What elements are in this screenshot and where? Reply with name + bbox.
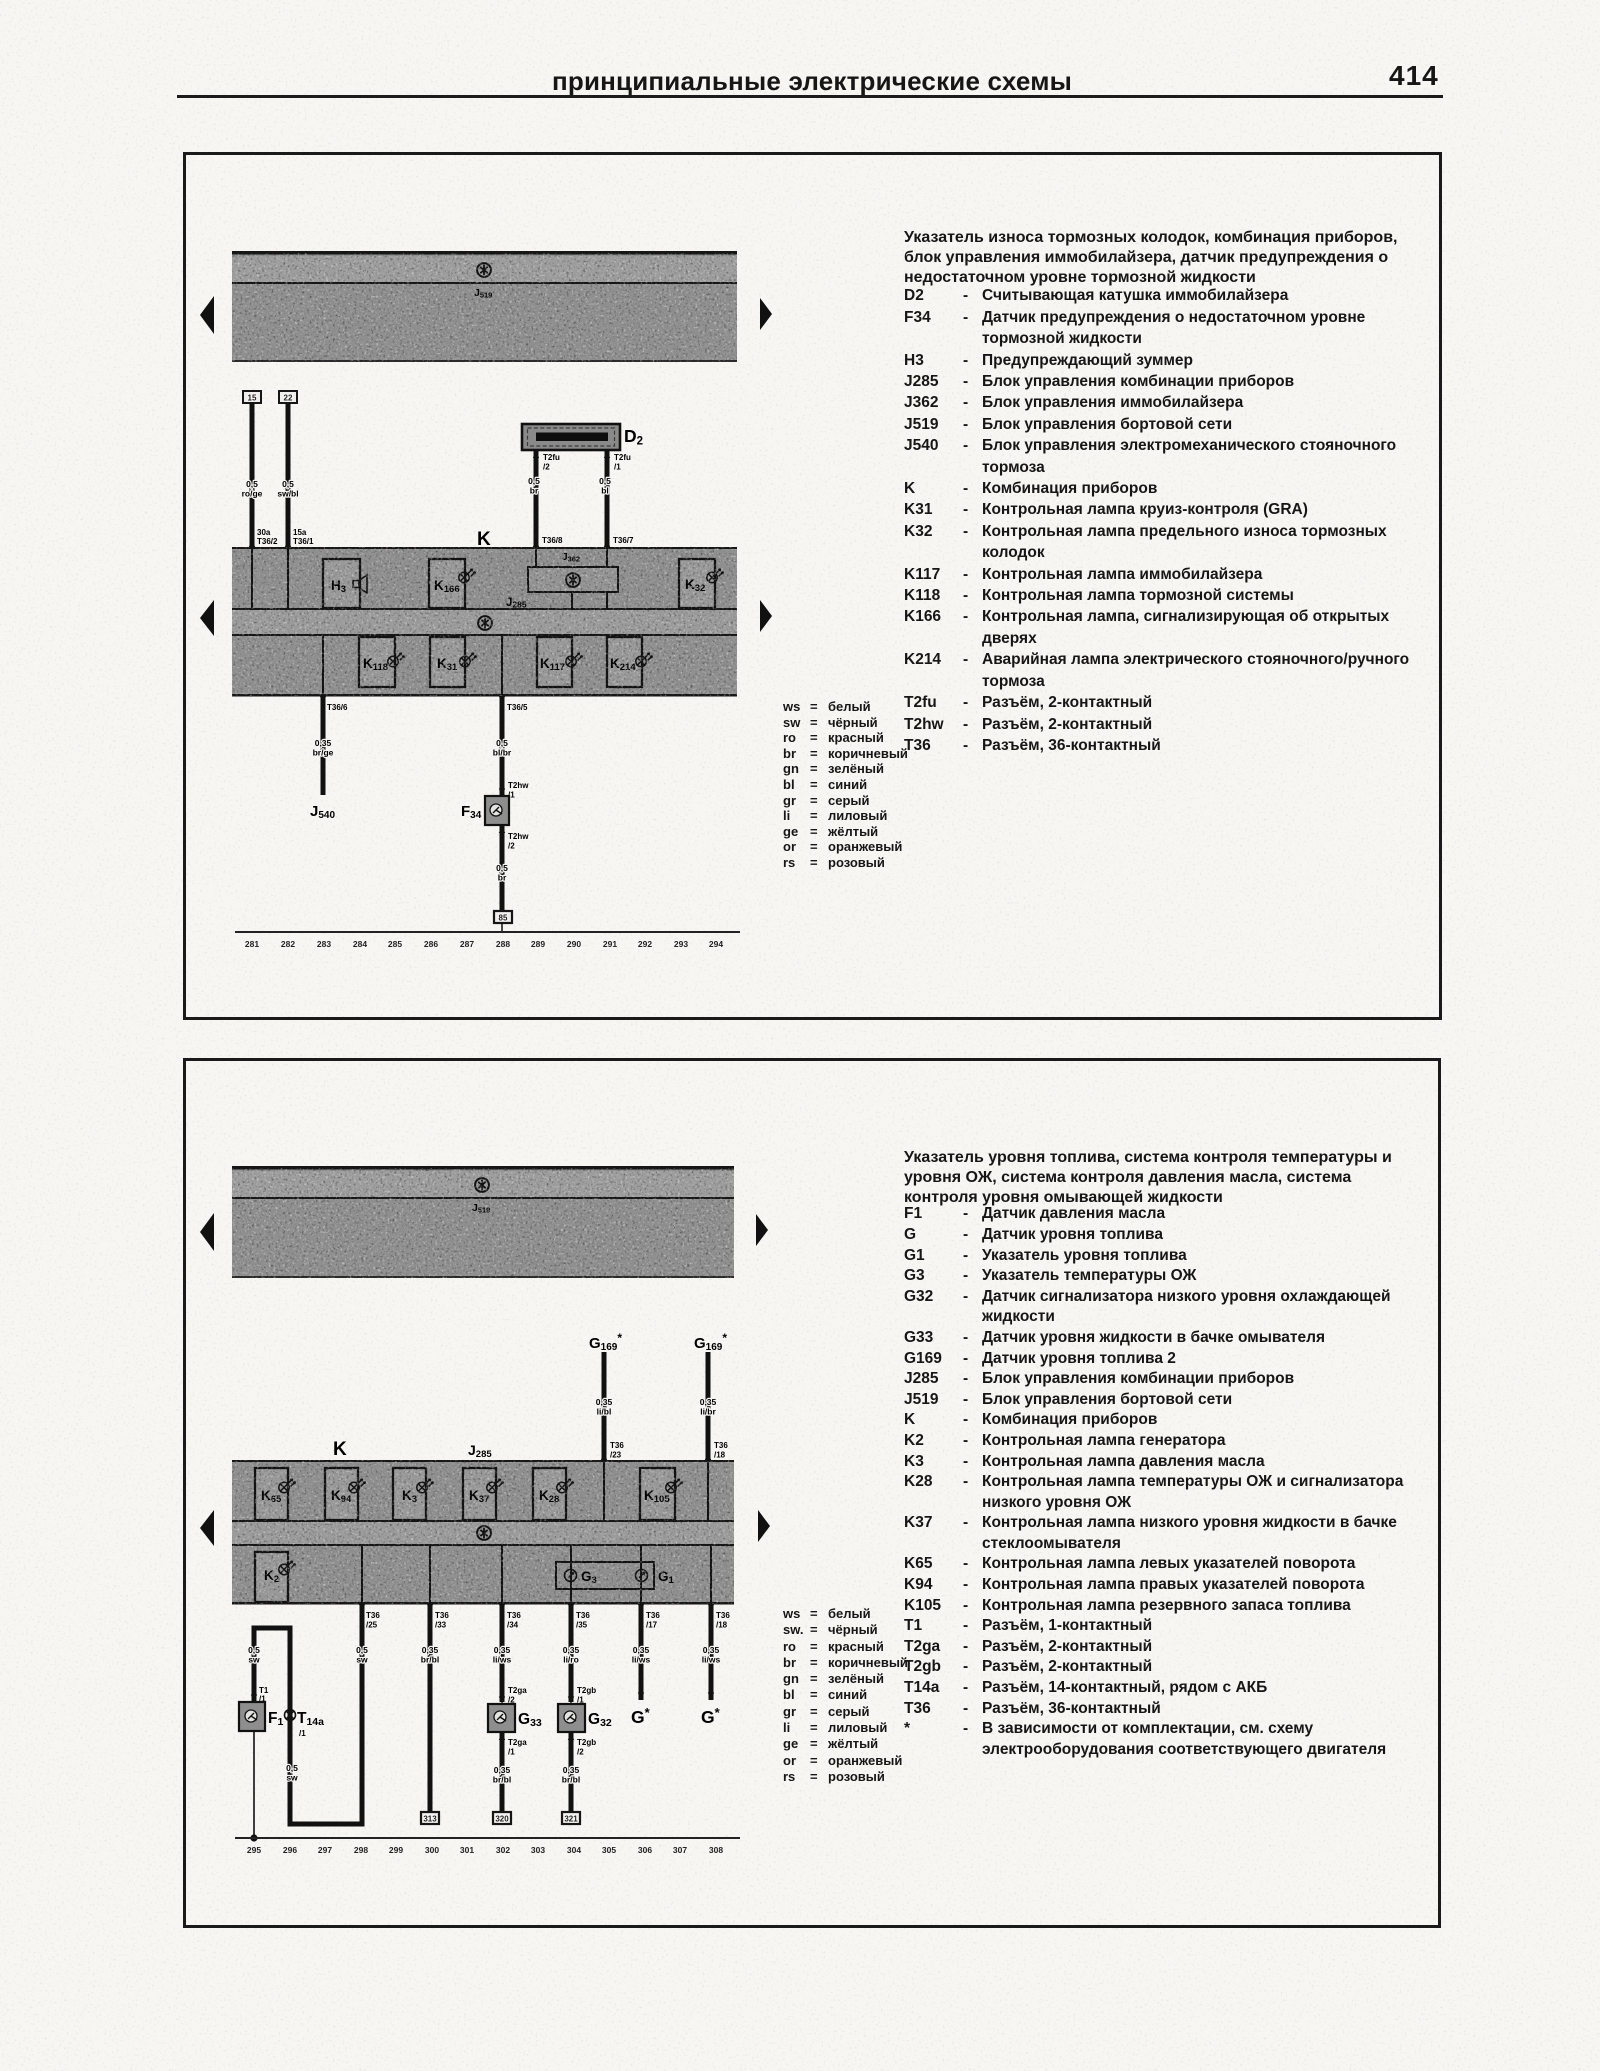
svg-text:0,35: 0,35 (494, 1765, 511, 1775)
svg-text:T36: T36 (646, 1611, 660, 1620)
svg-text:K: K (333, 1439, 347, 1460)
svg-text:320: 320 (495, 1815, 509, 1824)
svg-text:br/bl: br/bl (493, 1775, 511, 1785)
svg-text:0,35: 0,35 (633, 1645, 650, 1655)
svg-text:/1: /1 (508, 1748, 515, 1757)
svg-text:282: 282 (281, 939, 295, 949)
svg-text:T36: T36 (507, 1611, 521, 1620)
svg-text:304: 304 (567, 1845, 581, 1855)
svg-text:284: 284 (353, 939, 367, 949)
svg-text:308: 308 (709, 1845, 723, 1855)
svg-text:0,35: 0,35 (563, 1645, 580, 1655)
svg-text:0,5: 0,5 (496, 863, 508, 873)
svg-text:0,5: 0,5 (286, 1763, 298, 1773)
svg-text:T36/8: T36/8 (542, 536, 563, 545)
svg-text:302: 302 (496, 1845, 510, 1855)
svg-text:0,5: 0,5 (599, 476, 611, 486)
svg-text:30a: 30a (257, 528, 271, 537)
svg-text:/17: /17 (646, 1621, 658, 1630)
svg-text:T36: T36 (714, 1441, 728, 1450)
svg-text:307: 307 (673, 1845, 687, 1855)
svg-text:br/bl: br/bl (562, 1775, 580, 1785)
svg-text:0,35: 0,35 (596, 1397, 613, 1407)
svg-text:0,5: 0,5 (528, 476, 540, 486)
svg-text:281: 281 (245, 939, 259, 949)
svg-text:296: 296 (283, 1845, 297, 1855)
svg-text:0,5: 0,5 (356, 1645, 368, 1655)
svg-text:286: 286 (424, 939, 438, 949)
svg-text:297: 297 (318, 1845, 332, 1855)
svg-text:291: 291 (603, 939, 617, 949)
svg-text:306: 306 (638, 1845, 652, 1855)
svg-text:T2gb: T2gb (577, 1738, 596, 1747)
svg-text:/25: /25 (366, 1621, 378, 1630)
svg-text:T2gb: T2gb (577, 1686, 596, 1695)
svg-text:/1: /1 (299, 1729, 306, 1738)
svg-text:285: 285 (388, 939, 402, 949)
svg-text:290: 290 (567, 939, 581, 949)
svg-text:298: 298 (354, 1845, 368, 1855)
svg-text:0,5: 0,5 (246, 479, 258, 489)
svg-text:T36/1: T36/1 (293, 537, 314, 546)
svg-text:/18: /18 (716, 1621, 728, 1630)
svg-text:0,5: 0,5 (496, 738, 508, 748)
svg-text:T2hw: T2hw (508, 781, 529, 790)
svg-text:br/ge: br/ge (313, 748, 334, 758)
svg-text:0,35: 0,35 (315, 738, 332, 748)
svg-text:T2fu: T2fu (614, 453, 631, 462)
svg-text:305: 305 (602, 1845, 616, 1855)
svg-text:287: 287 (460, 939, 474, 949)
svg-text:li/ws: li/ws (493, 1655, 512, 1665)
svg-text:301: 301 (460, 1845, 474, 1855)
svg-text:321: 321 (564, 1815, 578, 1824)
svg-text:299: 299 (389, 1845, 403, 1855)
svg-text:T2hw: T2hw (508, 832, 529, 841)
svg-text:0,35: 0,35 (700, 1397, 717, 1407)
svg-text:ro/ge: ro/ge (242, 489, 263, 499)
svg-text:15a: 15a (293, 528, 307, 537)
svg-text:/34: /34 (507, 1621, 519, 1630)
svg-text:T2ga: T2ga (508, 1686, 527, 1695)
svg-text:0,35: 0,35 (422, 1645, 439, 1655)
svg-text:292: 292 (638, 939, 652, 949)
svg-text:li/bl: li/bl (597, 1407, 612, 1417)
svg-text:T36/6: T36/6 (327, 703, 348, 712)
svg-text:313: 313 (423, 1815, 437, 1824)
svg-text:303: 303 (531, 1845, 545, 1855)
svg-text:T36/2: T36/2 (257, 537, 278, 546)
svg-text:0,35: 0,35 (703, 1645, 720, 1655)
svg-text:15: 15 (248, 394, 257, 403)
svg-text:T36/5: T36/5 (507, 703, 528, 712)
svg-text:/18: /18 (714, 1451, 726, 1460)
svg-text:22: 22 (284, 394, 293, 403)
svg-text:/2: /2 (508, 842, 515, 851)
svg-text:T36/7: T36/7 (613, 536, 634, 545)
svg-text:/2: /2 (543, 463, 550, 472)
svg-text:295: 295 (247, 1845, 261, 1855)
svg-text:/35: /35 (576, 1621, 588, 1630)
svg-text:T2ga: T2ga (508, 1738, 527, 1747)
svg-text:T36: T36 (366, 1611, 380, 1620)
svg-text:li/ws: li/ws (702, 1655, 721, 1665)
svg-text:283: 283 (317, 939, 331, 949)
svg-text:T2fu: T2fu (543, 453, 560, 462)
svg-text:K: K (477, 529, 491, 550)
svg-text:br: br (498, 873, 507, 883)
svg-text:/1: /1 (614, 463, 621, 472)
svg-text:293: 293 (674, 939, 688, 949)
svg-text:bl/br: bl/br (493, 748, 512, 758)
svg-text:li/ws: li/ws (632, 1655, 651, 1665)
svg-text:T36: T36 (610, 1441, 624, 1450)
svg-text:294: 294 (709, 939, 723, 949)
svg-text:0,35: 0,35 (494, 1645, 511, 1655)
svg-text:0,5: 0,5 (248, 1645, 260, 1655)
svg-text:br/bl: br/bl (421, 1655, 439, 1665)
svg-text:li/br: li/br (700, 1407, 716, 1417)
svg-text:li/ro: li/ro (563, 1655, 579, 1665)
svg-text:300: 300 (425, 1845, 439, 1855)
svg-text:T36: T36 (576, 1611, 590, 1620)
svg-text:0,5: 0,5 (282, 479, 294, 489)
svg-text:/2: /2 (577, 1748, 584, 1757)
svg-text:sw: sw (248, 1655, 260, 1665)
svg-text:288: 288 (496, 939, 510, 949)
svg-text:sw/bl: sw/bl (277, 489, 298, 499)
svg-text:289: 289 (531, 939, 545, 949)
svg-text:sw: sw (286, 1773, 298, 1783)
svg-text:br: br (530, 486, 539, 496)
svg-text:T36: T36 (716, 1611, 730, 1620)
svg-text:0,35: 0,35 (563, 1765, 580, 1775)
svg-text:sw: sw (356, 1655, 368, 1665)
svg-text:bl: bl (601, 486, 609, 496)
svg-text:/23: /23 (610, 1451, 622, 1460)
svg-text:85: 85 (499, 914, 508, 923)
svg-text:T36: T36 (435, 1611, 449, 1620)
svg-text:/33: /33 (435, 1621, 447, 1630)
